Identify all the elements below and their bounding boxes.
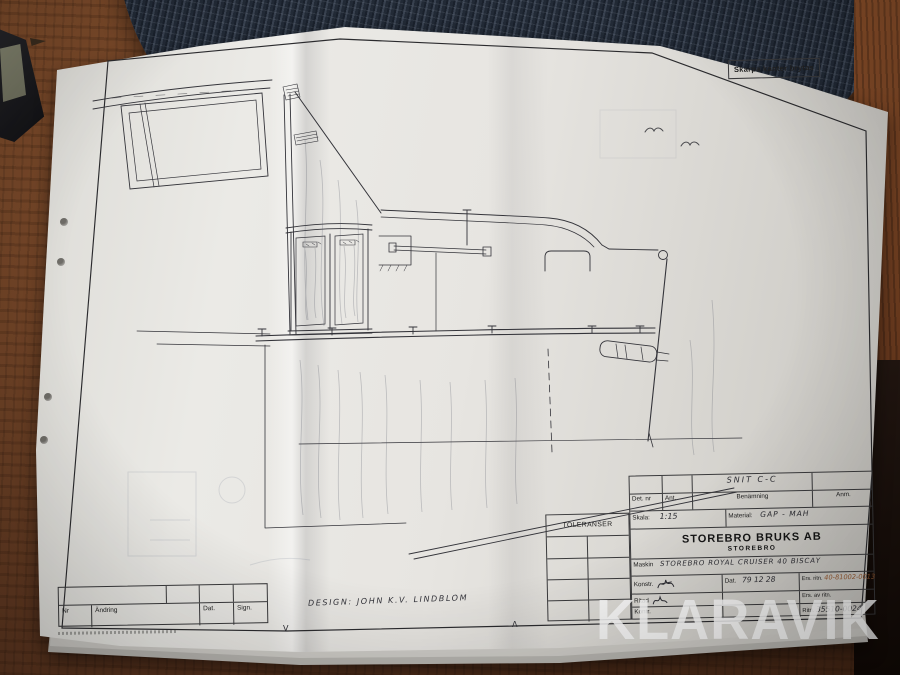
rev-nr-label: Nr bbox=[62, 608, 69, 615]
rev-sign-cell: Sign. bbox=[233, 602, 269, 625]
punch-hole bbox=[60, 218, 68, 226]
maskin-label: Maskin bbox=[633, 561, 653, 568]
ers-ritn-value: 40-81002-0013 bbox=[824, 573, 875, 582]
anm-label: Anm. bbox=[836, 491, 851, 498]
rev-andring-cell: Ändring bbox=[91, 603, 199, 627]
fold-mark-v: V bbox=[283, 624, 288, 633]
det-nr-cell: Det. nr bbox=[630, 494, 662, 511]
company-city: STOREBRO bbox=[728, 544, 777, 552]
rev-andring-label: Ändring bbox=[95, 607, 118, 614]
det-nr-label: Det. nr bbox=[632, 495, 651, 502]
skala-label: Skala: bbox=[632, 514, 650, 521]
punch-hole bbox=[44, 393, 52, 401]
ant-cell: Ant. bbox=[662, 493, 692, 510]
material-label: Material: bbox=[728, 512, 752, 520]
company-name: STOREBRO BRUKS AB bbox=[682, 530, 822, 545]
section-label: SNIT C-C bbox=[727, 475, 778, 485]
rev-dat-label: Dat. bbox=[203, 605, 215, 612]
maskin-value: STOREBRO ROYAL CRUISER 40 BISCAY bbox=[660, 557, 821, 568]
ant-label: Ant. bbox=[665, 495, 676, 502]
rev-nr-cell: Nr bbox=[59, 605, 91, 628]
klaravik-watermark: KLARAVIK bbox=[596, 588, 880, 653]
photo-of-boat-drawing: Skarpa kanter brytas TOLERANSER SNIT C-C bbox=[0, 0, 900, 675]
toleranser-label: TOLERANSER bbox=[546, 514, 628, 538]
dat-value: 79 12 28 bbox=[742, 575, 776, 585]
rev-sign-label: Sign. bbox=[237, 604, 252, 611]
grid-line bbox=[199, 585, 200, 602]
skala-cell: Skala: 1:15 bbox=[630, 510, 725, 529]
grid-line bbox=[166, 586, 167, 603]
corner-note-box: Skarpa kanter brytas bbox=[728, 58, 820, 79]
punch-hole bbox=[57, 258, 65, 266]
corner-note-text: Skarpa kanter brytas bbox=[734, 63, 814, 74]
rev-dat-cell: Dat. bbox=[199, 603, 233, 626]
revision-table: Nr Ändring Dat. Sign. bbox=[58, 583, 269, 627]
dat-label: Dat. bbox=[725, 577, 737, 584]
anm-cell: Anm. bbox=[812, 490, 874, 507]
empty-cell bbox=[662, 475, 692, 493]
punch-hole bbox=[40, 436, 48, 444]
revision-header-row: Nr Ändring Dat. Sign. bbox=[59, 602, 267, 628]
ers-ritn-label: Ers. ritn. bbox=[802, 576, 823, 582]
material-value: GAP - MAH bbox=[760, 509, 809, 519]
benamning-label: Benämning bbox=[736, 493, 768, 501]
fold-mark-caret: Λ bbox=[512, 620, 517, 629]
skala-value: 1:15 bbox=[660, 512, 678, 521]
grid-line bbox=[233, 585, 234, 602]
empty-cell bbox=[811, 472, 873, 490]
empty-cell bbox=[630, 476, 662, 494]
